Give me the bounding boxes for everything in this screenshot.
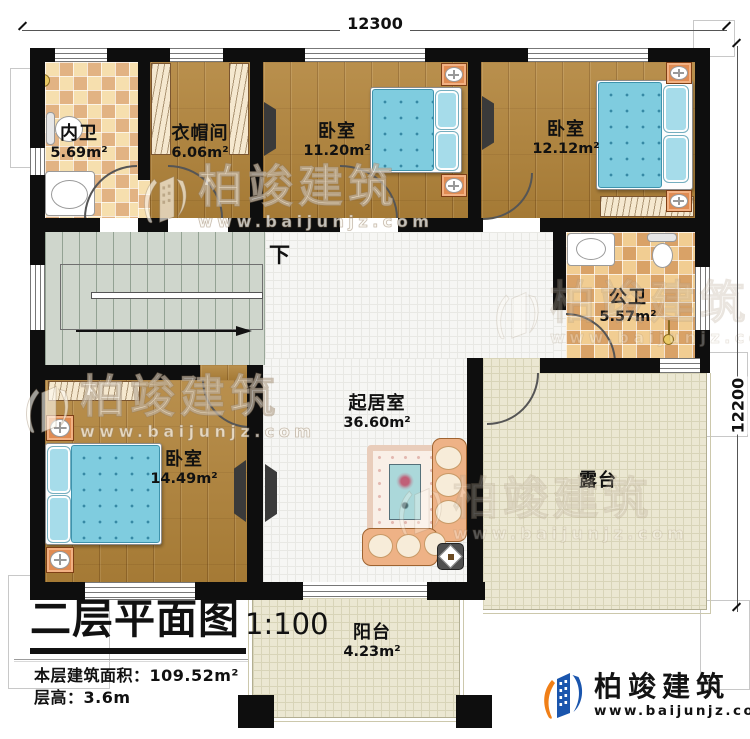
bedroom-c-doorway-floor: [200, 365, 250, 380]
room-label-balcony: 阳台 4.23m²: [318, 623, 426, 660]
coffee-table: [389, 464, 421, 520]
wall: [540, 218, 710, 232]
floor-area-value: 109.52m²: [150, 666, 239, 685]
balcony-sliding-door: [303, 585, 427, 597]
floor-height-label: 层高：: [34, 688, 84, 707]
room-name: 阳台: [318, 623, 426, 644]
room-name: 卧室: [512, 120, 620, 141]
stairs-handrail: [91, 292, 263, 299]
window: [55, 48, 107, 62]
room-label-cloakroom: 衣帽间 6.06m²: [150, 124, 250, 161]
wall: [468, 48, 481, 218]
wall: [540, 358, 660, 373]
floor-area-line: 本层建筑面积：109.52m²: [34, 662, 239, 686]
nightstand: [441, 174, 467, 197]
room-name: 公卫: [578, 288, 678, 309]
sink: [576, 238, 606, 260]
sofa-cushion: [435, 473, 462, 497]
tv: [234, 460, 246, 522]
stairs-direction-arrow: [236, 326, 252, 336]
wall: [398, 218, 483, 232]
room-label-living: 起居室 36.60m²: [318, 394, 436, 431]
terrace-doorway-floor: [483, 358, 540, 373]
nightstand: [441, 63, 467, 86]
floor-area-label: 本层建筑面积：: [34, 666, 150, 685]
window: [660, 358, 700, 373]
balcony-column: [456, 695, 492, 728]
room-floor-inner-bath-doorway: [138, 180, 150, 218]
room-label-bedroom-b: 卧室 12.12m²: [512, 120, 620, 157]
dimension-top-value: 12300: [340, 14, 410, 33]
floor-height-value: 3.6m: [84, 688, 131, 707]
pillow: [436, 91, 458, 129]
wall: [553, 232, 566, 310]
window: [695, 267, 710, 330]
brand-logo[interactable]: 柏竣建筑 www.baijunjz.com: [540, 668, 750, 722]
nightstand: [46, 415, 74, 441]
wardrobe: [48, 381, 140, 401]
room-name: 衣帽间: [150, 124, 250, 145]
room-label-bedroom-a: 卧室 11.20m²: [283, 122, 391, 159]
sofa-cushion: [368, 534, 393, 558]
sink: [51, 180, 88, 209]
room-area: 36.60m²: [318, 415, 436, 432]
dimension-line-right: [737, 46, 738, 612]
wall: [467, 358, 483, 582]
wall: [247, 365, 263, 600]
floor-drain: [663, 334, 674, 345]
room-label-public-bath: 公卫 5.57m²: [578, 288, 678, 325]
room-area: 5.69m²: [43, 145, 115, 162]
toilet: [652, 243, 673, 268]
page-title: 二层平面图: [30, 597, 240, 642]
wall: [138, 48, 150, 180]
floor-height-line: 层高：3.6m: [34, 684, 131, 708]
pillow: [48, 496, 70, 542]
wall: [30, 365, 200, 380]
brand-name: 柏竣建筑: [594, 671, 750, 703]
room-name: 起居室: [318, 394, 436, 415]
room-area: 5.57m²: [578, 309, 678, 326]
pillow: [436, 132, 458, 170]
wall: [138, 218, 168, 232]
floor-plan-canvas: 内卫 5.69m² 衣帽间 6.06m² 卧室 11.20m² 卧室 12.12…: [0, 0, 750, 739]
sofa-cushion: [435, 446, 462, 470]
window: [305, 48, 425, 62]
room-label-terrace: 露台: [558, 471, 638, 492]
side-table: [437, 543, 464, 570]
pillow: [664, 86, 688, 132]
tv: [482, 96, 494, 150]
room-name: 卧室: [283, 122, 391, 143]
stairs-direction-line: [76, 330, 237, 332]
tv: [264, 102, 276, 156]
brand-url[interactable]: www.baijunjz.com: [594, 703, 750, 719]
wall: [700, 358, 710, 373]
balcony-column: [238, 695, 274, 728]
room-area: 12.12m²: [512, 141, 620, 158]
title-underline: [30, 648, 246, 654]
nightstand: [666, 62, 692, 84]
pillow: [48, 447, 70, 493]
corridor-floor: [265, 232, 553, 358]
room-area: 6.06m²: [150, 145, 250, 162]
room-area: 14.49m²: [136, 471, 232, 488]
room-name: 卧室: [136, 450, 232, 471]
wall: [427, 582, 485, 600]
room-label-inner-bath: 内卫 5.69m²: [43, 124, 115, 161]
nightstand: [666, 190, 692, 212]
window: [170, 48, 223, 62]
room-name: 露台: [558, 471, 638, 492]
public-bath-doorway-floor: [553, 310, 566, 358]
room-label-bedroom-c: 卧室 14.49m²: [136, 450, 232, 487]
sofa-cushion: [396, 534, 421, 558]
room-area: 4.23m²: [318, 644, 426, 661]
tv: [265, 464, 277, 522]
window: [30, 265, 45, 330]
dimension-right-value: 12200: [729, 377, 748, 435]
pillow: [664, 136, 688, 182]
sofa-cushion: [435, 500, 462, 524]
wall: [30, 218, 100, 232]
stairs-down-label: 下: [264, 243, 296, 267]
room-name: 内卫: [43, 124, 115, 145]
brand-logo-icon: [540, 668, 586, 722]
title-block: 二层平面图 1:100: [30, 597, 329, 642]
room-area: 11.20m²: [283, 143, 391, 160]
toilet-tank: [647, 233, 677, 242]
window: [528, 48, 648, 62]
wall: [250, 48, 263, 232]
nightstand: [46, 547, 74, 573]
wall: [228, 218, 340, 232]
drawing-scale: 1:100: [245, 606, 329, 642]
